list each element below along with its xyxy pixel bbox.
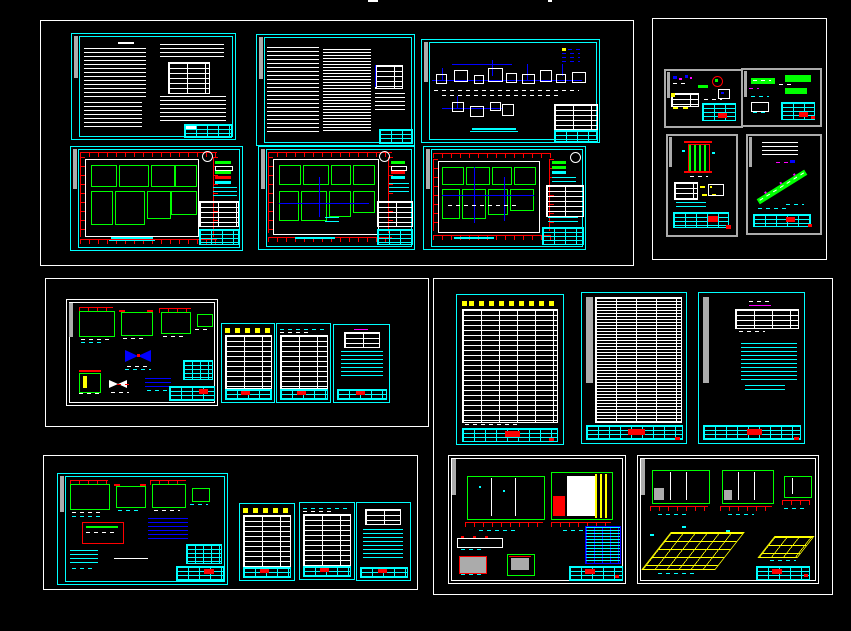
schedule-table: [303, 514, 351, 566]
legend-notes: [548, 217, 578, 225]
text-block: [160, 44, 224, 60]
north-arrow-icon: [570, 152, 581, 163]
dimension-line: [268, 152, 392, 157]
detail-bar: [684, 141, 712, 143]
label-text: [123, 338, 147, 339]
label-text: [114, 558, 148, 562]
room: [353, 191, 375, 213]
stamp-chip: [615, 575, 619, 578]
room: [119, 165, 149, 187]
approval-stamp: [747, 429, 762, 435]
small-table: [735, 309, 799, 329]
detail-box: [708, 184, 724, 196]
label-text: [72, 516, 100, 517]
title-underline: [354, 329, 368, 330]
sheet-notes-table-2[interactable]: [356, 502, 411, 581]
process-pipe: [452, 64, 512, 65]
table-edge: [375, 65, 376, 87]
room: [147, 191, 171, 219]
notes-text: [676, 202, 706, 208]
stamp-chip: [549, 438, 554, 441]
binding-strip: [74, 36, 78, 78]
process-unit: [502, 104, 514, 116]
schedule-table: [462, 309, 558, 423]
binding-strip: [259, 37, 263, 79]
detail-mark: [715, 79, 718, 82]
sheet-sections-details[interactable]: [448, 455, 626, 584]
dim-tick: [473, 536, 476, 538]
approval-stamp: [708, 216, 718, 222]
process-unit: [474, 75, 484, 84]
binding-strip: [261, 149, 265, 189]
sheet-schedule-4[interactable]: [299, 502, 355, 580]
dimension-line: [80, 152, 217, 157]
title-block: [756, 566, 810, 580]
group-schedules-sections: [433, 278, 833, 595]
approval-stamp: [204, 569, 214, 574]
label-text: [125, 369, 151, 370]
sheet-notes-1[interactable]: [71, 33, 236, 140]
pad-fill: [511, 558, 529, 570]
partition-line: [515, 478, 516, 516]
dimension-line: [433, 153, 551, 158]
partition-line: [792, 478, 793, 494]
table: [168, 62, 210, 94]
drawing-title-underline: [109, 240, 155, 241]
pad-detail: [459, 556, 487, 574]
flow-arrow: [117, 384, 129, 385]
room: [492, 167, 512, 185]
title-block: [377, 229, 413, 245]
stamp-chip: [808, 224, 812, 227]
valve-symbol: [790, 160, 795, 163]
section-title-underline: [749, 305, 771, 306]
legend-row: [562, 61, 580, 62]
isometric-piping-grid-2: [757, 536, 814, 558]
title-block: [542, 227, 584, 245]
dim-tick: [485, 536, 488, 538]
process-unit: [454, 70, 468, 82]
approval-stamp: [241, 391, 250, 395]
valve-symbol: [673, 76, 677, 79]
clipped-geometry: [548, 0, 552, 2]
legend-chip: [391, 171, 405, 174]
tank-detail: [161, 312, 191, 334]
legend-notes: [213, 187, 237, 197]
stamp-chip: [794, 437, 799, 440]
equipment-block: [553, 496, 565, 516]
header-chip: [462, 301, 467, 306]
detail-box: [718, 89, 730, 99]
label-text: [753, 80, 771, 81]
sheet-detail-c[interactable]: [666, 134, 738, 237]
approval-stamp: [320, 568, 329, 572]
label-text: [81, 339, 109, 340]
notes-text: [341, 351, 383, 379]
label-text: [779, 84, 793, 85]
approval-stamp: [718, 113, 727, 118]
dim-tick: [79, 370, 101, 372]
sheet-detail-b[interactable]: [741, 68, 822, 127]
drawing-title-text: [770, 560, 796, 561]
label-text: [690, 176, 708, 177]
room: [91, 165, 117, 187]
group-details-schedules-lower: [43, 455, 418, 590]
process-unit: [556, 74, 566, 83]
label-text: [118, 510, 142, 511]
pipe-labels: [448, 205, 518, 206]
dimension-line: [782, 500, 810, 505]
process-unit: [452, 102, 464, 112]
pipe-line: [504, 177, 505, 221]
partition-line: [491, 478, 492, 516]
fixture-mark: [479, 486, 481, 488]
room: [303, 165, 329, 185]
drawing-title-text: [479, 530, 515, 531]
callout: [712, 152, 715, 154]
title-block: [753, 214, 811, 227]
stamp-chip: [726, 225, 731, 229]
piping-tree-detail: [762, 142, 798, 158]
process-unit: [522, 74, 535, 84]
binding-strip: [426, 149, 430, 189]
title-block: [673, 212, 729, 228]
title-block-cell: [186, 126, 196, 129]
label-text: [753, 112, 767, 113]
parts-table: [186, 544, 222, 564]
parts-table: [183, 360, 213, 380]
label-text: [190, 504, 208, 505]
sheet-floor-plan-2[interactable]: [258, 146, 415, 250]
drawing-title-text: [728, 514, 754, 515]
label-text: [749, 88, 759, 89]
process-unit: [506, 73, 517, 83]
binding-strip: [424, 42, 428, 82]
legend-chip: [215, 171, 231, 174]
label-text: [147, 390, 169, 391]
clipped-geometry: [368, 0, 378, 2]
approval-stamp: [505, 431, 520, 437]
binding-strip: [667, 72, 670, 98]
stamp-chip: [811, 116, 815, 119]
binding-strip: [749, 137, 752, 167]
title-block: [554, 130, 598, 142]
group-detail-sheets: [652, 18, 827, 260]
room: [353, 165, 375, 185]
legend-table: [546, 185, 584, 217]
filter-section-detail: [688, 144, 710, 172]
sheet-title-text: [118, 42, 134, 44]
grate-detail: [674, 182, 698, 200]
revision-ladder: [703, 297, 709, 383]
label-text: [154, 510, 180, 511]
ladder-hatch: [595, 474, 609, 518]
approval-stamp: [772, 569, 782, 574]
equipment-bar: [785, 88, 807, 94]
drawing-title-text: [111, 237, 153, 239]
legend-table: [554, 104, 598, 130]
approval-stamp: [786, 217, 795, 222]
equipment-fill: [654, 488, 664, 500]
equipment-fill: [724, 490, 732, 500]
sub-label: [739, 331, 765, 332]
title-block: [781, 102, 815, 120]
dimension-line: [465, 522, 543, 527]
table-header: [225, 328, 270, 333]
small-table: [365, 509, 401, 525]
schedule-table: [225, 335, 272, 389]
conveyor-core: [759, 172, 804, 200]
pipe-fitting-detail: [70, 550, 98, 564]
room: [466, 167, 490, 185]
equipment-labels: [434, 90, 579, 91]
dim-tick: [114, 484, 120, 486]
isometric-piping-grid-1: [641, 532, 745, 570]
tank-detail: [116, 486, 146, 508]
frame-member: [86, 526, 118, 528]
notes-text: [745, 385, 785, 391]
sheet-notes-table[interactable]: [333, 324, 390, 403]
drawing-title-underline: [470, 131, 518, 132]
sheet-notes-2[interactable]: [256, 34, 415, 146]
approval-stamp: [356, 391, 365, 395]
pipe-line: [319, 177, 320, 217]
sheet-floor-plan-1[interactable]: [70, 146, 243, 251]
drawing-title-text: [784, 508, 806, 509]
table-header: [280, 332, 310, 333]
label-text: [111, 392, 129, 393]
room: [510, 189, 534, 211]
sheet-schedule-1[interactable]: [221, 323, 275, 403]
parts-table: [585, 526, 621, 564]
dim-tick: [147, 310, 153, 312]
approval-stamp: [199, 389, 208, 394]
cad-canvas[interactable]: [0, 0, 851, 631]
group-details-schedules-upper: [45, 278, 429, 427]
room: [279, 191, 299, 221]
callout: [682, 150, 685, 152]
approval-stamp: [378, 569, 387, 573]
sheet-equipment-schedule[interactable]: [456, 294, 564, 445]
label-text: [758, 208, 786, 209]
binding-strip: [669, 137, 672, 167]
sheet-floor-plan-3[interactable]: [423, 146, 586, 250]
room: [91, 191, 113, 225]
label-text: [704, 99, 722, 100]
schedule-table: [595, 297, 682, 423]
wall-fill: [567, 476, 595, 516]
text-block: [323, 49, 371, 131]
section-elevation-1: [467, 476, 545, 520]
legend-table: [377, 201, 413, 227]
dimension-line: [720, 506, 772, 511]
section-title-text: [749, 301, 771, 302]
sheet-equipment-details[interactable]: [57, 473, 228, 585]
title-block: [199, 229, 239, 245]
walkway-detail: [457, 538, 503, 548]
iso-node-label: [726, 530, 730, 532]
legend-chip: [562, 48, 566, 51]
legend-row: [562, 53, 580, 54]
fitting-symbol: [764, 191, 767, 194]
fitting-symbol: [679, 78, 682, 80]
north-arrow-icon: [379, 151, 390, 162]
stamp-chip: [675, 437, 680, 440]
title-block: [176, 566, 224, 581]
detail-bar: [684, 171, 712, 173]
process-unit: [470, 106, 484, 117]
pipe-line: [279, 203, 369, 204]
room: [331, 165, 351, 185]
detail-mark: [721, 92, 724, 94]
pipe-line: [474, 167, 475, 223]
legend-chip: [552, 166, 566, 169]
dim-tick: [119, 310, 125, 312]
binding-strip: [641, 459, 645, 495]
valve-symbol: [685, 75, 688, 78]
label-text: [786, 204, 804, 205]
sheet-detail-a[interactable]: [664, 69, 743, 128]
schedule-table: [243, 515, 291, 567]
hopper-detail: [192, 488, 210, 502]
aerator-detail: [145, 378, 171, 388]
fixture-mark: [503, 490, 505, 492]
legend-table: [199, 201, 239, 227]
drawing-title-text: [454, 237, 494, 239]
sheet-material-schedule[interactable]: [581, 292, 687, 444]
fitting-symbol: [793, 173, 796, 176]
drawing-title-text: [658, 573, 694, 574]
label-text: [163, 336, 185, 337]
label-text: [751, 96, 769, 97]
binding-strip: [744, 71, 747, 97]
title-block: [379, 129, 413, 144]
detail-mark: [698, 85, 708, 88]
pump-cluster-detail: [148, 518, 188, 540]
label-text: [81, 342, 105, 343]
text-block: [267, 47, 319, 135]
table-header: [469, 301, 556, 306]
group-plans-and-flow: [40, 20, 634, 266]
legend-chip: [552, 161, 566, 164]
tank-detail: [152, 484, 186, 508]
table: [375, 65, 403, 89]
sheet-general-notes[interactable]: [698, 292, 805, 444]
fixture-cluster: [325, 217, 339, 225]
sheet-installation-details[interactable]: [66, 299, 218, 406]
schedule-table: [280, 335, 328, 389]
dimension-line: [650, 506, 708, 511]
iso-node-label: [682, 526, 686, 528]
drawing-title-text: [472, 128, 516, 130]
text-block: [84, 48, 146, 98]
title-block: [702, 103, 736, 121]
room: [175, 165, 197, 187]
sheet-elevations-isometric[interactable]: [637, 455, 819, 584]
partition-line: [738, 472, 739, 500]
legend-chip: [215, 181, 231, 184]
tank-detail: [121, 312, 153, 336]
label-text: [195, 329, 211, 330]
tank-detail: [79, 311, 115, 337]
sheet-detail-d[interactable]: [746, 134, 822, 235]
label-text: [86, 532, 114, 533]
sheet-process-flow[interactable]: [421, 39, 600, 143]
equipment-labels: [442, 95, 562, 96]
iso-node-label: [650, 534, 654, 536]
drawing-title-text: [658, 514, 688, 515]
notes-text: [363, 529, 403, 559]
approval-stamp: [799, 112, 808, 117]
binding-strip: [69, 303, 73, 337]
label-text: [461, 574, 481, 575]
process-unit: [490, 102, 501, 111]
approval-stamp: [628, 429, 645, 435]
text-block: [160, 96, 226, 124]
approval-stamp: [297, 391, 306, 395]
pipe-line: [442, 195, 534, 196]
pad-edge: [509, 556, 531, 557]
title-block: [569, 566, 623, 581]
equipment-bar: [751, 78, 775, 84]
process-unit: [488, 68, 503, 82]
room: [301, 191, 327, 221]
legend-chip: [391, 161, 405, 164]
partition-line: [754, 472, 755, 500]
legend-chip: [215, 161, 231, 164]
legend-chip: [391, 176, 405, 179]
hopper-detail: [197, 314, 213, 327]
detail-table: [671, 93, 699, 107]
label-text: [673, 83, 689, 84]
mixer-hub: [137, 354, 140, 357]
stamp-chip: [804, 574, 808, 577]
label-text: [673, 107, 689, 109]
label-text: [461, 549, 483, 550]
room: [171, 191, 197, 215]
partition-line: [686, 472, 687, 500]
legend-notes: [552, 177, 576, 183]
sheet-schedule-3[interactable]: [239, 503, 295, 581]
approval-stamp: [585, 569, 595, 574]
drawing-title-text: [295, 237, 335, 239]
table-header: [243, 508, 289, 513]
process-unit: [540, 70, 552, 82]
room: [279, 165, 301, 185]
room: [514, 167, 536, 185]
equipment-bar: [785, 75, 811, 82]
revision-ladder: [586, 297, 593, 383]
elevation-3: [784, 476, 812, 498]
dim-tick: [140, 484, 146, 486]
room: [115, 191, 145, 225]
binding-strip: [73, 149, 77, 189]
legend-chip: [552, 171, 566, 174]
process-unit: [572, 72, 586, 83]
label-text: [776, 162, 790, 163]
room: [442, 189, 460, 219]
table-header: [280, 329, 326, 330]
tank-detail: [70, 484, 110, 510]
fitting-symbol: [690, 77, 692, 79]
legend-notes: [389, 183, 409, 195]
text-block: [375, 93, 405, 113]
text-block: [84, 102, 142, 130]
fitting-symbol: [779, 182, 782, 185]
label-text: [72, 568, 96, 569]
legend-row: [568, 49, 580, 50]
sheet-schedule-2[interactable]: [276, 323, 331, 403]
